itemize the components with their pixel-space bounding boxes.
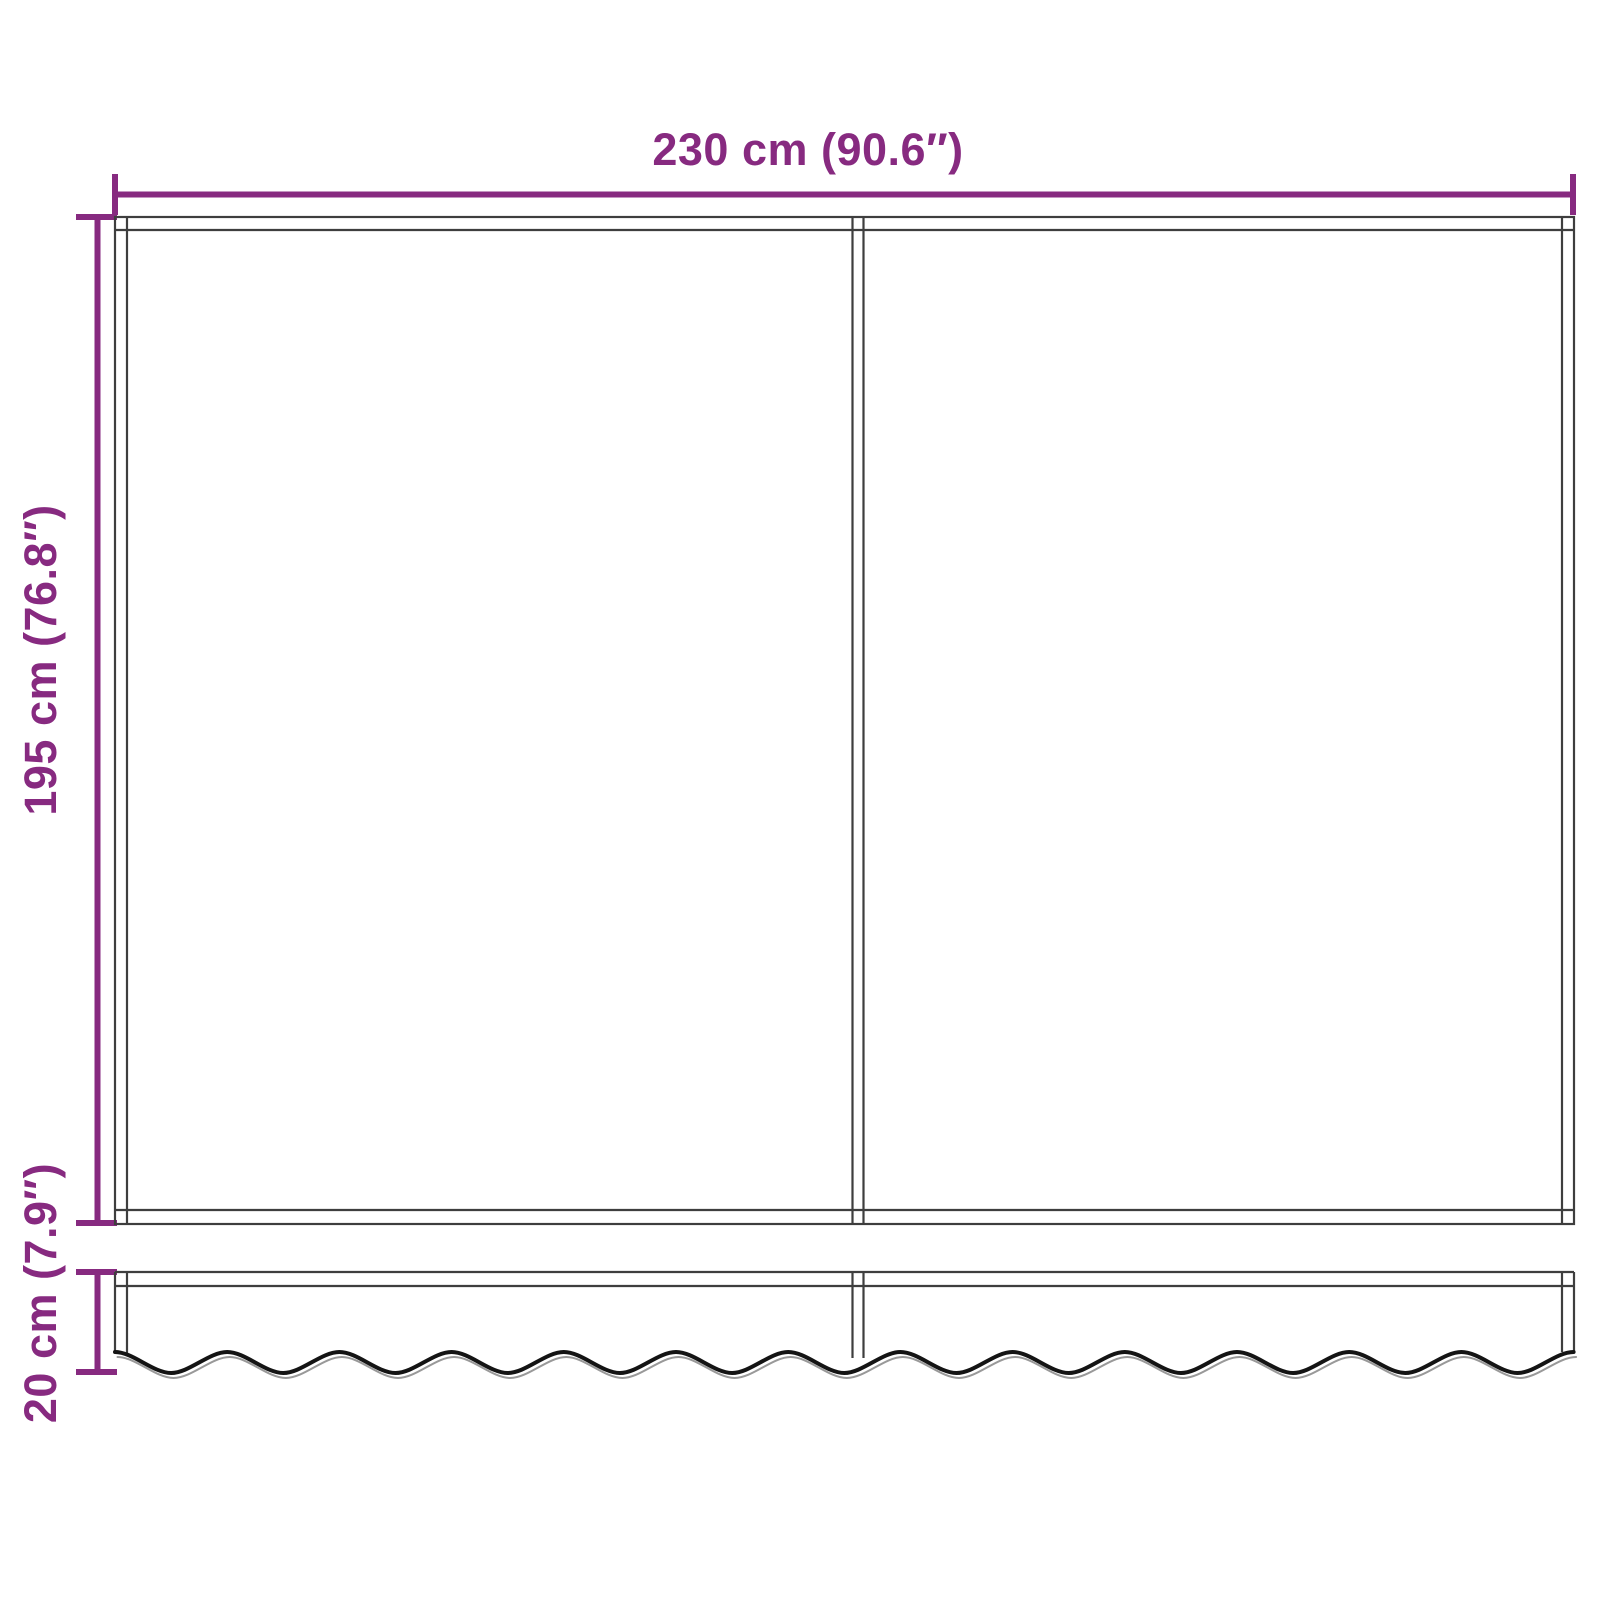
scalloped-hem xyxy=(115,1352,1576,1378)
height-dimension-label: 195 cm (76.8″) xyxy=(15,504,67,815)
height-dimension-line xyxy=(76,217,117,1223)
main-panel-centre-seam xyxy=(853,217,864,1224)
valance-dimension-line xyxy=(76,1272,117,1372)
width-dimension-line xyxy=(115,174,1573,215)
main-fabric-panel xyxy=(115,217,1574,1224)
width-dimension-label: 230 cm (90.6″) xyxy=(652,124,963,176)
dimension-diagram: 230 cm (90.6″) 195 cm (76.8″) 20 cm (7.9… xyxy=(0,0,1600,1600)
valance-strip xyxy=(115,1272,1576,1378)
valance-height-dimension-label: 20 cm (7.9″) xyxy=(15,1163,67,1423)
diagram-drawing xyxy=(0,0,1600,1600)
